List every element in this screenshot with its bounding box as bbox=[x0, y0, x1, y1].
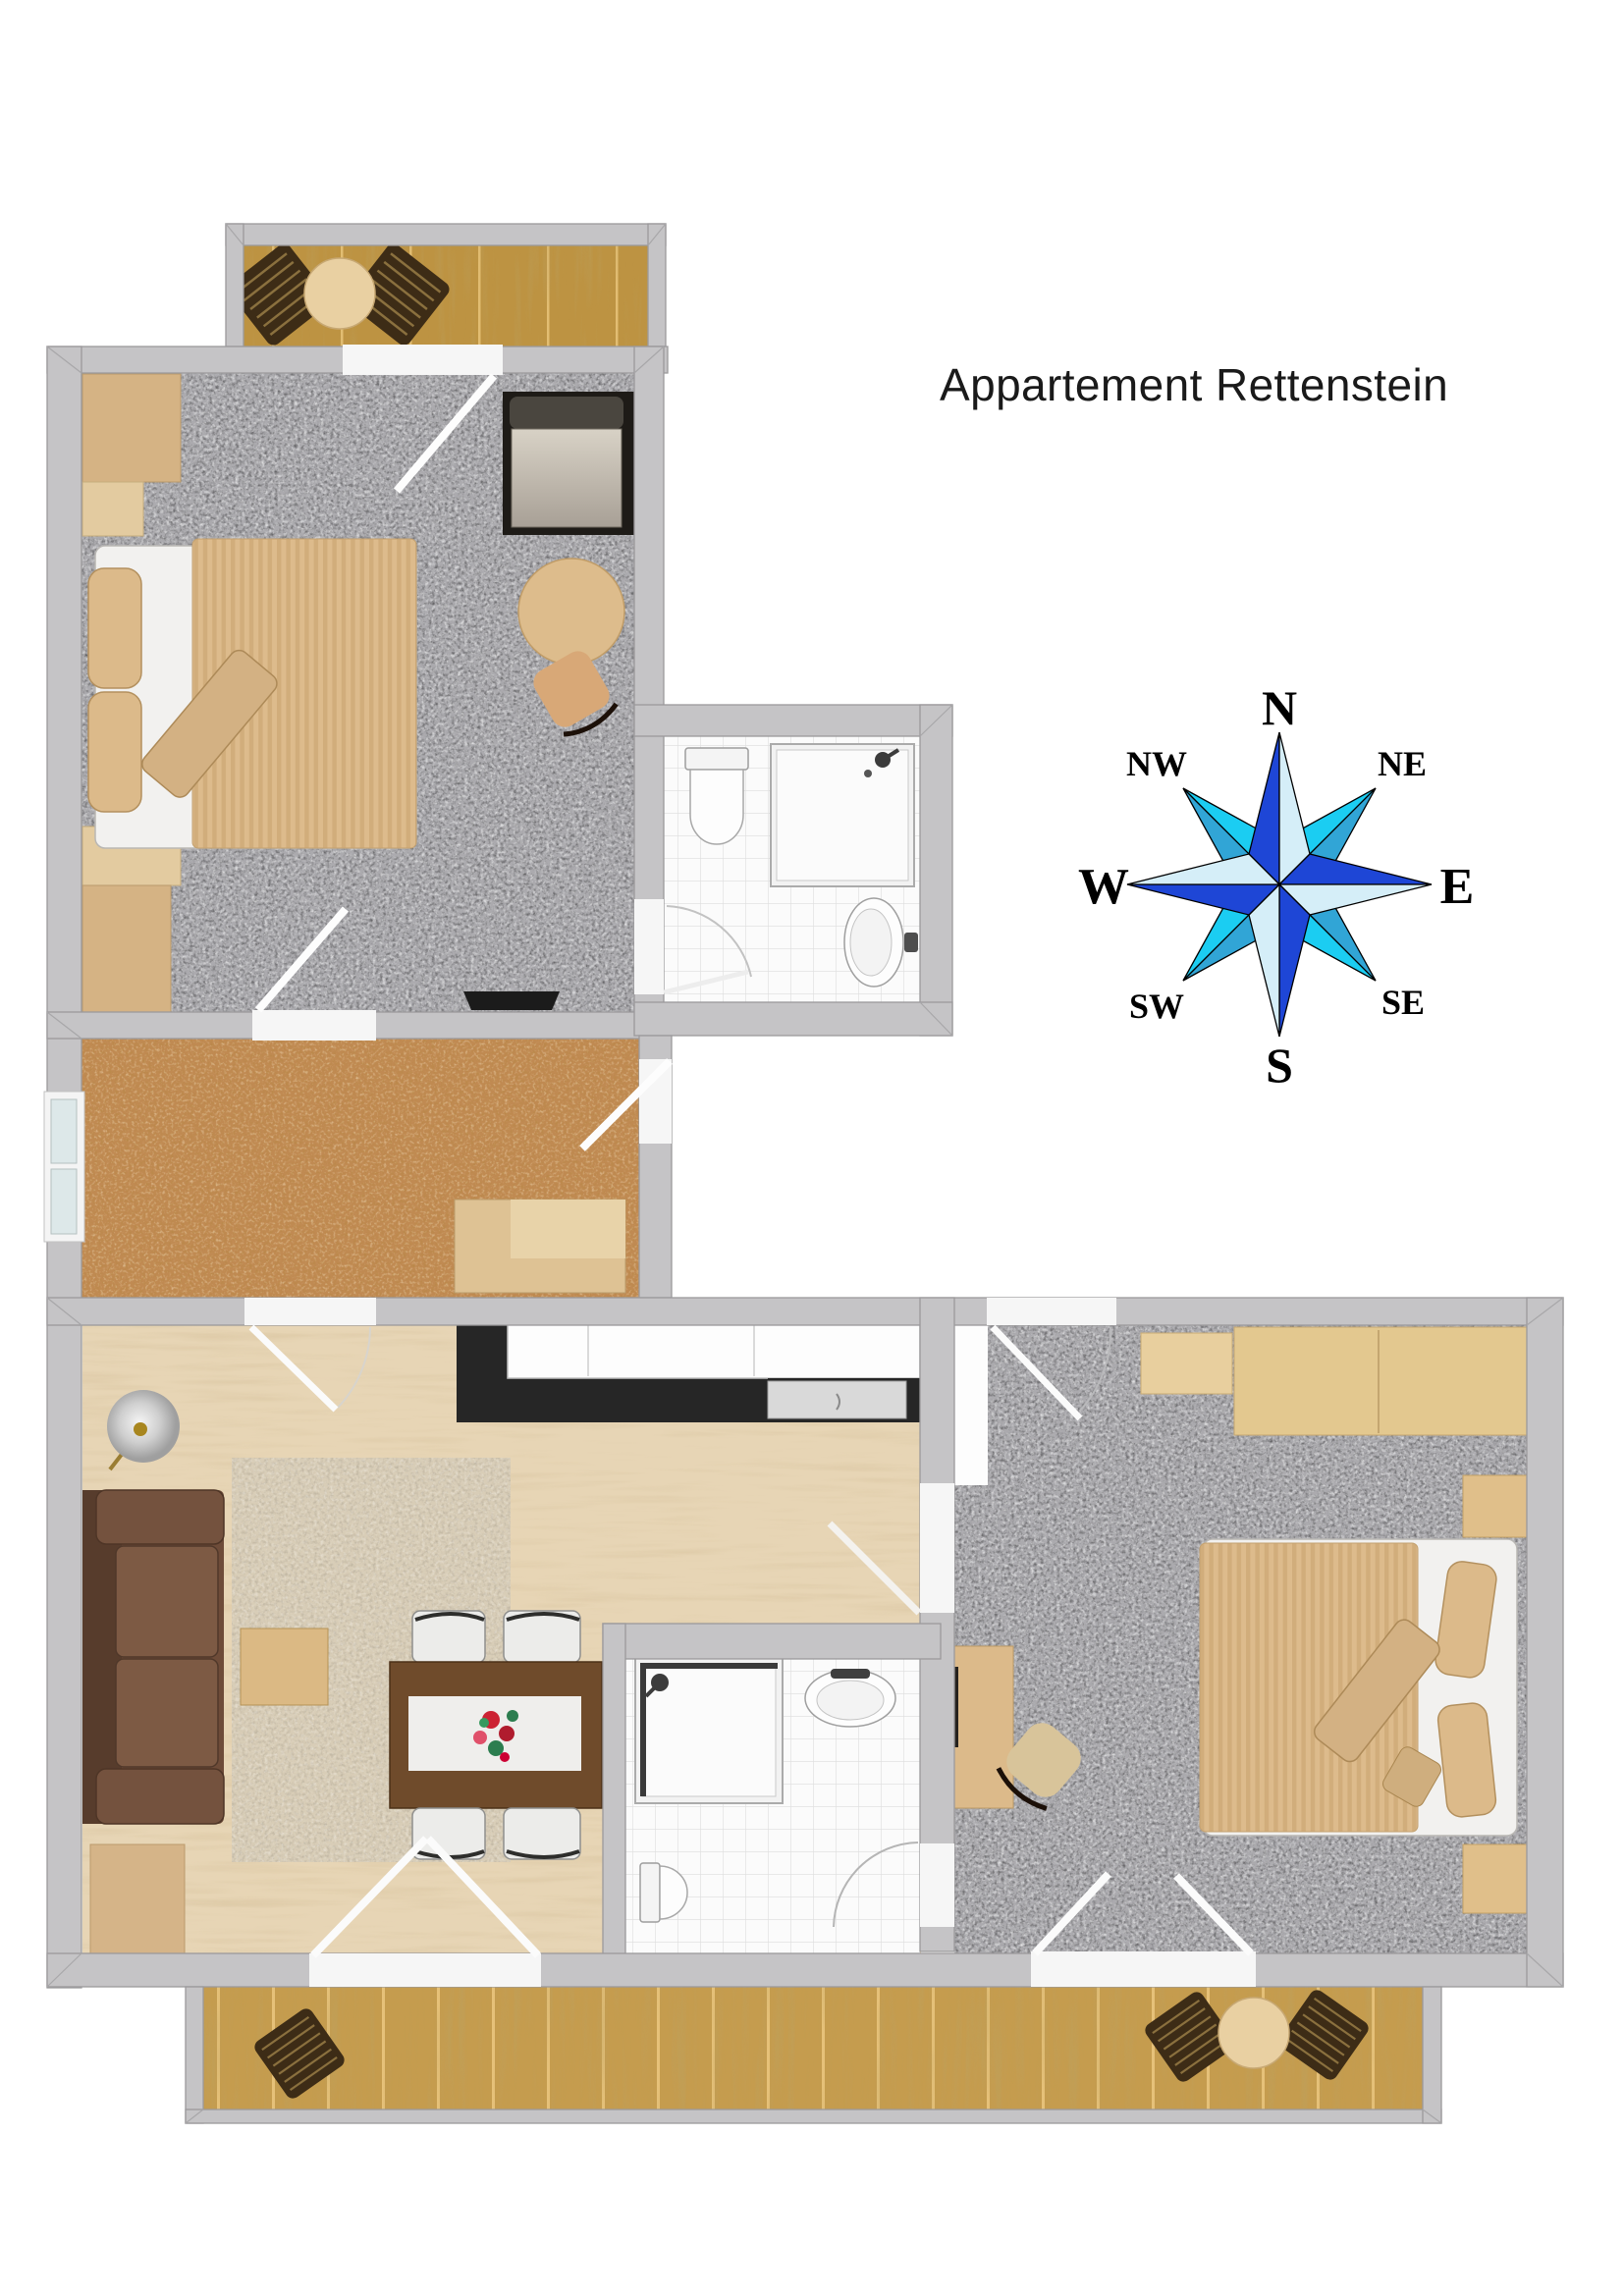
svg-text:W: W bbox=[1078, 859, 1129, 915]
svg-text:Appartement Rettenstein: Appartement Rettenstein bbox=[940, 359, 1448, 410]
svg-text:NE: NE bbox=[1378, 744, 1427, 783]
svg-text:S: S bbox=[1266, 1038, 1293, 1093]
svg-text:SW: SW bbox=[1129, 987, 1184, 1026]
svg-text:N: N bbox=[1262, 680, 1297, 735]
svg-text:NW: NW bbox=[1126, 744, 1187, 783]
svg-text:E: E bbox=[1440, 859, 1475, 915]
svg-text:SE: SE bbox=[1381, 983, 1425, 1022]
